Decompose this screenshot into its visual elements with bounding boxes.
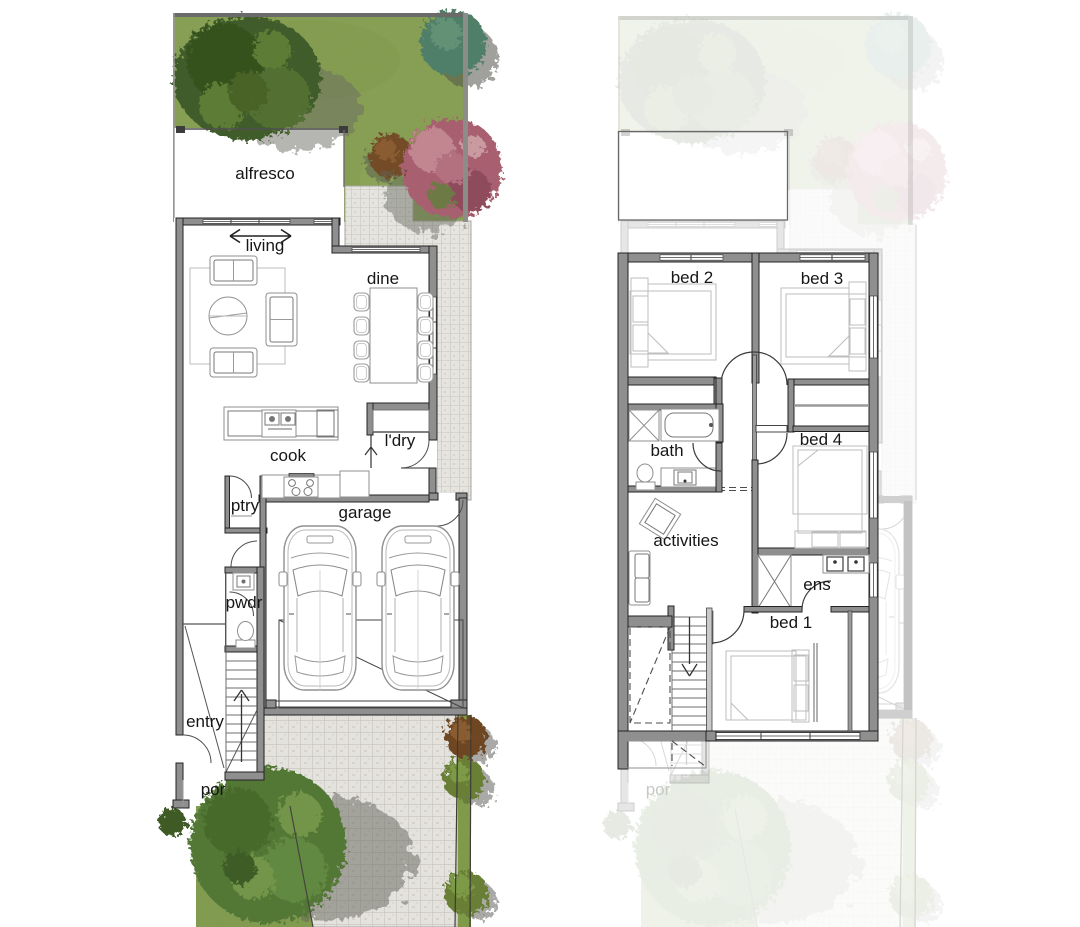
svg-text:bed 2: bed 2: [671, 268, 714, 287]
svg-text:bath: bath: [650, 441, 683, 460]
svg-text:bed 1: bed 1: [770, 613, 813, 632]
svg-text:bed 4: bed 4: [800, 430, 843, 449]
svg-text:bed 3: bed 3: [801, 269, 844, 288]
svg-text:ens: ens: [803, 575, 830, 594]
svg-text:activities: activities: [653, 531, 718, 550]
svg-text:por: por: [646, 780, 671, 799]
